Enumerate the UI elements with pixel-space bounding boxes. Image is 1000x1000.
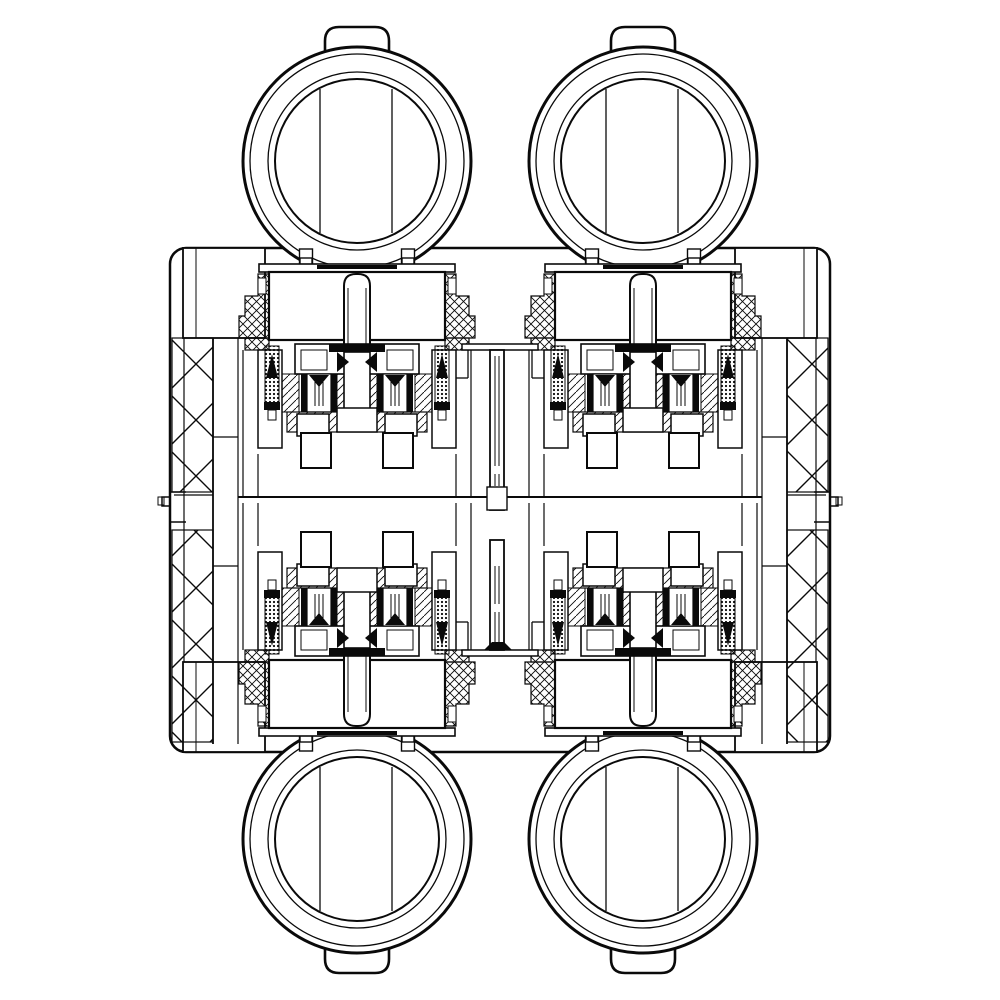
drawing-canvas bbox=[0, 0, 1000, 1000]
knob-bottom-right bbox=[529, 725, 757, 973]
knob-top-left bbox=[243, 27, 471, 275]
end-wall-hatch bbox=[787, 530, 828, 742]
knob-top-right bbox=[529, 27, 757, 275]
end-wall-hatch bbox=[172, 530, 213, 742]
end-wall-hatch bbox=[787, 338, 828, 492]
knob-bottom-left bbox=[243, 725, 471, 973]
technical-drawing bbox=[0, 0, 1000, 1000]
end-wall-hatch bbox=[172, 338, 213, 492]
